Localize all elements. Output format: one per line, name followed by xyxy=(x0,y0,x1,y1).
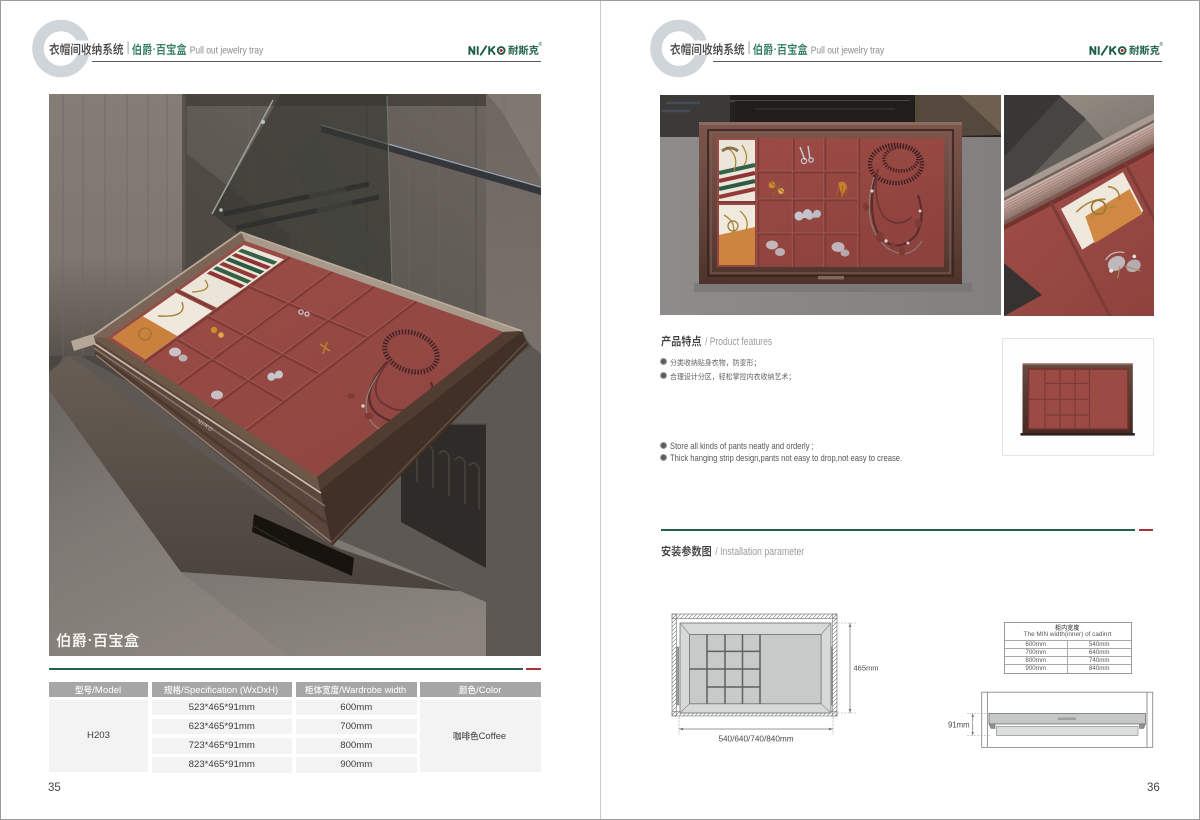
svg-text:465mm: 465mm xyxy=(854,664,879,673)
svg-text:/Wardrobe width: /Wardrobe width xyxy=(339,685,406,696)
svg-text:/Color: /Color xyxy=(476,685,501,696)
svg-text:/ Product features: / Product features xyxy=(705,336,772,348)
svg-text:/Specification (WxDxH): /Specification (WxDxH) xyxy=(181,685,278,696)
svg-text:/ Installation parameter: / Installation parameter xyxy=(715,546,804,558)
svg-text:Pull out jewelry tray: Pull out jewelry tray xyxy=(190,45,264,57)
svg-text:/Model: /Model xyxy=(92,685,121,696)
svg-text:540/640/740/840mm: 540/640/740/840mm xyxy=(718,735,793,744)
svg-text:Pull out jewelry tray: Pull out jewelry tray xyxy=(810,45,884,57)
svg-text:91mm: 91mm xyxy=(948,721,970,730)
svg-text:Coffee: Coffee xyxy=(479,731,507,742)
